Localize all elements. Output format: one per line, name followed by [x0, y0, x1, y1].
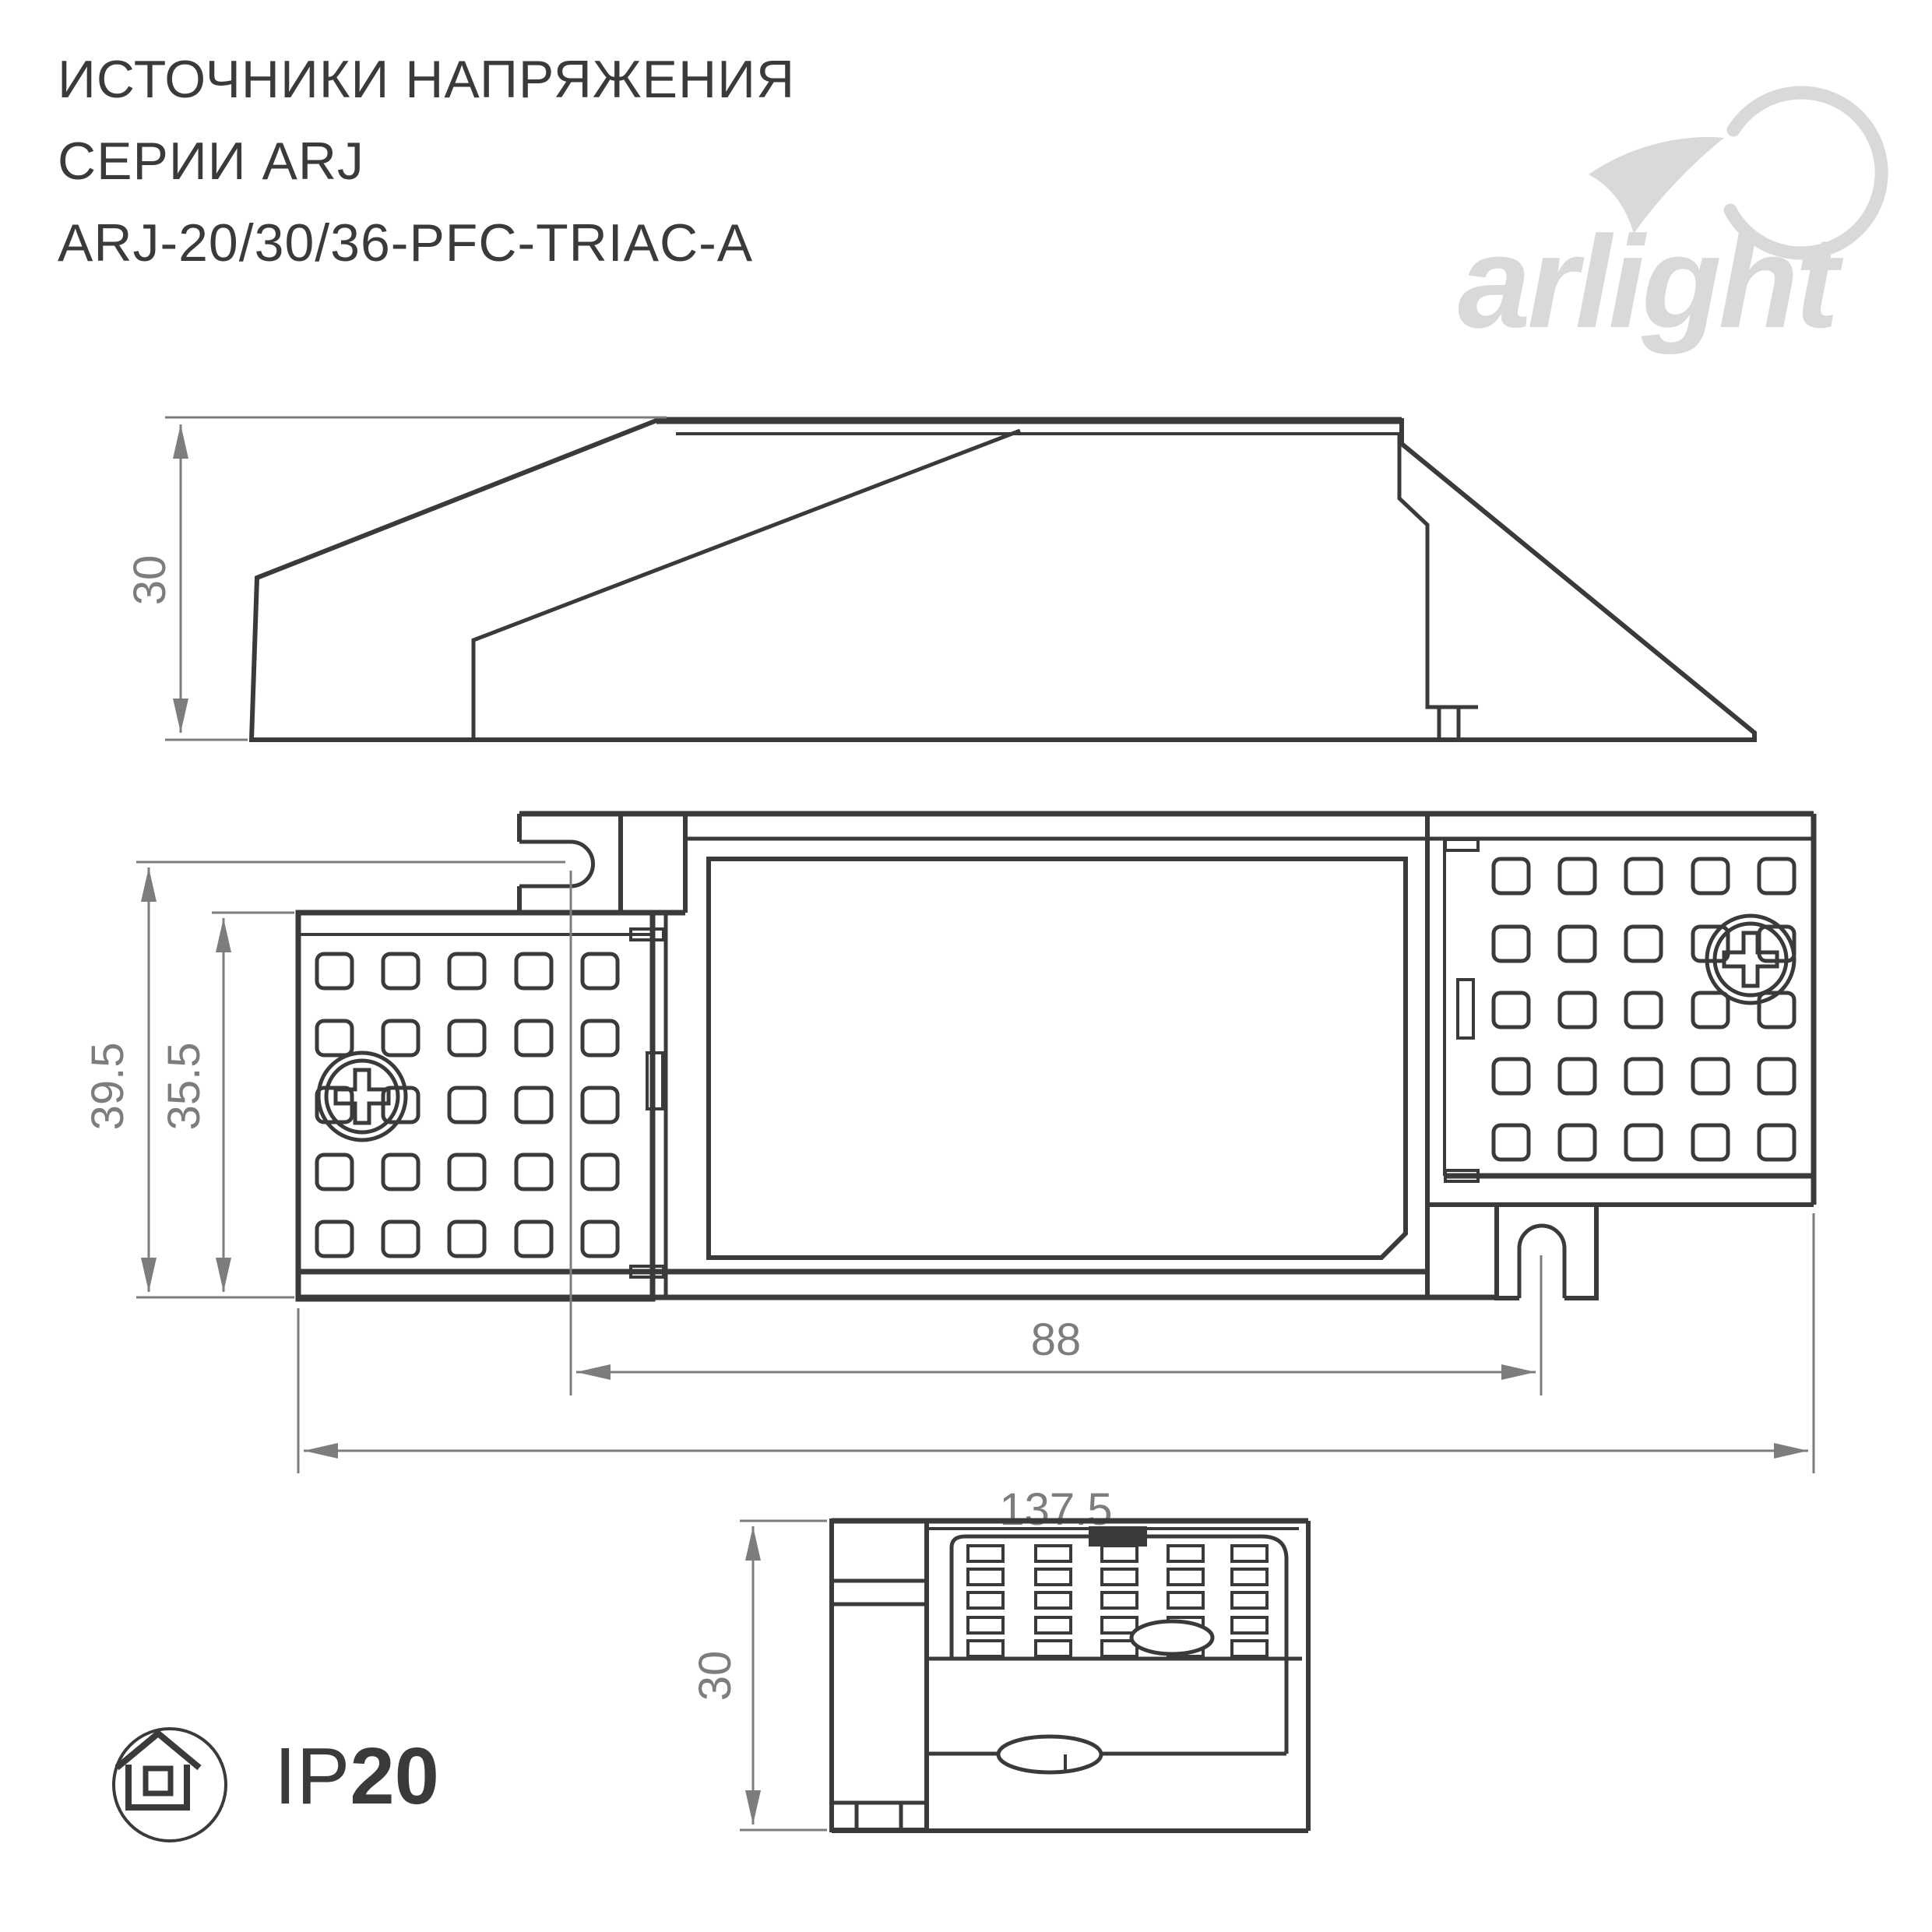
- dim-label-88: 88: [1031, 1314, 1082, 1365]
- end-large-oval: [998, 1737, 1101, 1772]
- dim-label-35-5: 35.5: [159, 1043, 209, 1131]
- left-block-vents: [317, 954, 618, 1256]
- end-black-marker: [1089, 1526, 1147, 1547]
- right-block-clip-top: [1445, 839, 1478, 850]
- mount-ear-bottom: [1497, 1205, 1596, 1298]
- right-block-clip-mid: [1458, 980, 1473, 1038]
- right-block-vents: [1494, 859, 1794, 1160]
- house-window-icon: [146, 1768, 171, 1793]
- plan-view: [298, 814, 1814, 1299]
- side-view: [252, 421, 1754, 740]
- side-inner-step-right: [1399, 434, 1478, 738]
- datasheet-page: ИСТОЧНИКИ НАПРЯЖЕНИЯ СЕРИИ ARJ ARJ-20/30…: [0, 0, 1932, 1932]
- end-view-dimension: [740, 1521, 827, 1830]
- side-view-dimension: [165, 417, 667, 740]
- dim-label-39-5: 39.5: [83, 1043, 133, 1131]
- ip-rating-value: 20: [350, 1731, 439, 1821]
- end-view: [832, 1521, 1308, 1831]
- label-area: [709, 859, 1406, 1258]
- side-inner-step-left: [473, 431, 1020, 738]
- dim-label-30-end: 30: [690, 1651, 741, 1701]
- mount-slot-left: [519, 842, 593, 886]
- arlight-logo: arlight: [1458, 93, 1881, 355]
- ip-rating: IP20: [274, 1731, 439, 1821]
- plan-dim-labels: 39.5 35.5 88 137.5: [83, 1043, 1113, 1535]
- ip-rating-prefix: IP: [274, 1731, 350, 1821]
- side-outline: [252, 421, 1754, 740]
- technical-drawing: arlight 30: [0, 0, 1932, 1932]
- left-screw: [318, 1053, 406, 1140]
- dim-label-30-side: 30: [125, 555, 175, 606]
- end-vents: [968, 1546, 1267, 1656]
- end-connector-column: [832, 1521, 927, 1830]
- ip-badge: [114, 1729, 226, 1841]
- end-small-oval: [1131, 1621, 1212, 1654]
- logo-wordmark: arlight: [1458, 209, 1843, 355]
- house-roof-icon: [117, 1733, 199, 1768]
